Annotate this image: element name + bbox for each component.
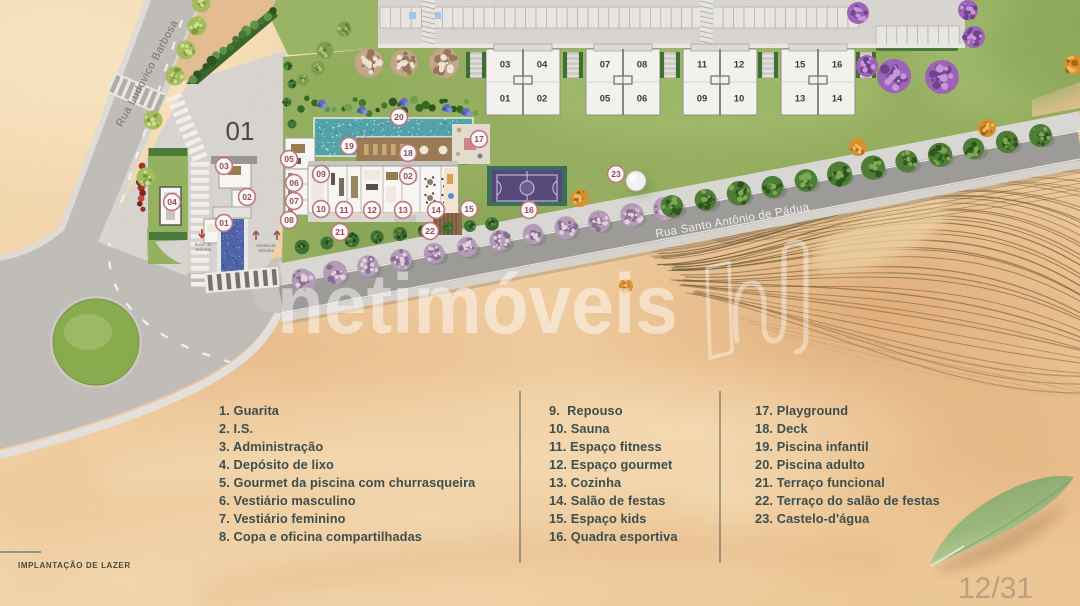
svg-text:16. Quadra esportiva: 16. Quadra esportiva xyxy=(549,529,678,544)
svg-text:04: 04 xyxy=(537,60,548,71)
svg-text:10: 10 xyxy=(734,94,745,105)
svg-text:11: 11 xyxy=(339,205,348,215)
svg-text:23. Castelo-d'água: 23. Castelo-d'água xyxy=(755,511,870,526)
svg-text:9. Repouso: 9. Repouso xyxy=(549,403,623,418)
svg-text:IMPLANTAÇÃO DE LAZER: IMPLANTAÇÃO DE LAZER xyxy=(18,561,131,570)
svg-text:14. Salão de festas: 14. Salão de festas xyxy=(549,493,665,508)
svg-text:22. Terraço do salão de festas: 22. Terraço do salão de festas xyxy=(755,493,940,508)
svg-text:Veículos: Veículos xyxy=(195,247,211,252)
svg-text:20: 20 xyxy=(394,112,404,122)
svg-text:19: 19 xyxy=(344,141,354,151)
svg-text:11. Espaço fitness: 11. Espaço fitness xyxy=(549,439,662,454)
svg-text:netimóveis: netimóveis xyxy=(277,257,678,351)
svg-text:14: 14 xyxy=(832,94,843,105)
svg-text:3. Administração: 3. Administração xyxy=(219,439,323,454)
svg-text:12: 12 xyxy=(734,60,745,71)
svg-text:17: 17 xyxy=(474,134,484,144)
svg-text:7. Vestiário feminino: 7. Vestiário feminino xyxy=(219,511,346,526)
svg-text:1. Guarita: 1. Guarita xyxy=(219,403,280,418)
svg-text:15: 15 xyxy=(795,60,806,71)
svg-text:14: 14 xyxy=(431,205,441,215)
svg-text:08: 08 xyxy=(637,60,648,71)
svg-text:15: 15 xyxy=(464,204,474,214)
svg-text:16: 16 xyxy=(832,60,843,71)
svg-text:01: 01 xyxy=(500,94,511,105)
svg-text:11: 11 xyxy=(697,60,708,71)
svg-text:8. Copa e oficina compartilhad: 8. Copa e oficina compartilhadas xyxy=(219,529,422,544)
svg-text:02: 02 xyxy=(242,192,252,202)
svg-text:19. Piscina infantil: 19. Piscina infantil xyxy=(755,439,869,454)
svg-text:07: 07 xyxy=(600,60,611,71)
svg-text:Veículos: Veículos xyxy=(258,248,274,253)
svg-text:10. Sauna: 10. Sauna xyxy=(549,421,610,436)
svg-text:02: 02 xyxy=(537,94,548,105)
svg-text:01: 01 xyxy=(226,116,255,146)
svg-text:20. Piscina adulto: 20. Piscina adulto xyxy=(755,457,865,472)
svg-text:10: 10 xyxy=(316,204,326,214)
svg-text:15. Espaço kids: 15. Espaço kids xyxy=(549,511,647,526)
svg-text:6. Vestiário masculino: 6. Vestiário masculino xyxy=(219,493,356,508)
svg-text:17. Playground: 17. Playground xyxy=(755,403,848,418)
svg-text:05: 05 xyxy=(284,154,294,164)
svg-text:12. Espaço gourmet: 12. Espaço gourmet xyxy=(549,457,673,472)
svg-text:21. Terraço funcional: 21. Terraço funcional xyxy=(755,475,885,490)
svg-text:12/31: 12/31 xyxy=(958,572,1033,605)
svg-text:12: 12 xyxy=(367,205,377,215)
svg-text:08: 08 xyxy=(284,215,294,225)
svg-text:13: 13 xyxy=(795,94,806,105)
svg-text:07: 07 xyxy=(289,196,299,206)
svg-text:22: 22 xyxy=(425,226,435,236)
svg-text:03: 03 xyxy=(500,60,511,71)
svg-text:03: 03 xyxy=(219,161,229,171)
svg-text:2. I.S.: 2. I.S. xyxy=(219,421,253,436)
svg-text:21: 21 xyxy=(335,227,345,237)
svg-text:05: 05 xyxy=(600,94,611,105)
svg-text:09: 09 xyxy=(316,169,326,179)
svg-text:06: 06 xyxy=(637,94,648,105)
svg-text:02: 02 xyxy=(403,171,413,181)
svg-text:23: 23 xyxy=(611,169,621,179)
svg-text:18: 18 xyxy=(403,148,413,158)
svg-text:5. Gourmet da piscina com chur: 5. Gourmet da piscina com churrasqueira xyxy=(219,475,476,490)
svg-text:18. Deck: 18. Deck xyxy=(755,421,809,436)
svg-text:16: 16 xyxy=(524,205,534,215)
svg-text:4. Depósito de lixo: 4. Depósito de lixo xyxy=(219,457,334,472)
svg-text:09: 09 xyxy=(697,94,708,105)
svg-text:13: 13 xyxy=(398,205,408,215)
svg-text:06: 06 xyxy=(289,178,299,188)
svg-text:04: 04 xyxy=(167,197,177,207)
svg-text:13. Cozinha: 13. Cozinha xyxy=(549,475,622,490)
svg-text:01: 01 xyxy=(219,218,229,228)
